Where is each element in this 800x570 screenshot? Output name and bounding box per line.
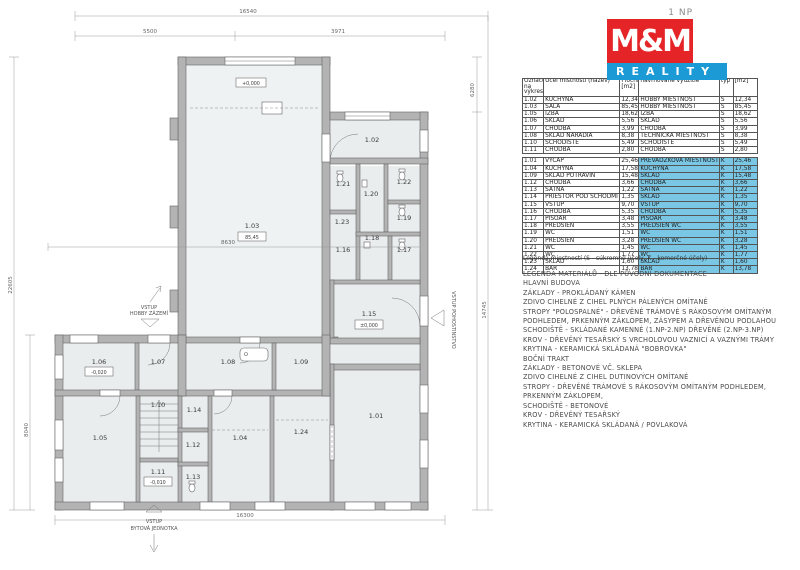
table-cell: HOBBY MIESTNOSŤ: [639, 96, 719, 103]
table-cell: 18,62: [733, 111, 757, 118]
legend-line: ZDIVO CIHELNÉ Z CIHEL PLNÝCH PÁLENÝCH OM…: [523, 298, 799, 307]
table-cell: PREDSIEŇ: [544, 237, 620, 244]
table-cell: S: [719, 132, 733, 139]
table-cell: 1.16: [523, 208, 544, 215]
table-cell: K: [719, 158, 733, 165]
table-cell: IZBA: [544, 111, 620, 118]
table-cell: 1,60: [733, 259, 757, 266]
legend-line: PRKENNÝM ZÁKLOPEM,: [523, 392, 799, 401]
col-header: typ: [719, 79, 733, 97]
entrance-pub-label: VSTUP POHOSTINSTVO: [450, 291, 456, 349]
table-cell: SKLAD: [639, 118, 719, 125]
table-cell: S: [719, 118, 733, 125]
room-label-1-04: 1.04: [233, 434, 247, 442]
room-label-1-01: 1.01: [369, 412, 383, 420]
table-cell: SCHODIŠTĚ: [639, 140, 719, 147]
materials-legend: LEGENDA MATERIÁLŮ - DLE PŮVODNÍ DOKUMENT…: [523, 270, 799, 430]
sink-icon: [362, 180, 367, 187]
table-cell: CHODBA: [639, 180, 719, 187]
table-cell: K: [719, 230, 733, 237]
room-label-1-11: 1.11: [151, 468, 165, 476]
table-cell: PREDSIEŇ: [544, 223, 620, 230]
table-row: 1.14PRIESTOR POD SCHODMI1,35SKLADK1,35: [523, 194, 758, 201]
col-header: Plocha [m2]: [620, 79, 639, 97]
brand-logo: 1 NP M&M REALITY: [607, 8, 727, 80]
screenshot-stage: 16540 5500 3971 6280 14745 22605 8040 1: [0, 0, 800, 570]
room-label-1-06: 1.06: [92, 358, 106, 366]
table-cell: 1.20: [523, 237, 544, 244]
table-cell: 1.15: [523, 201, 544, 208]
table-row: 1.09SKLAD POTRAVÍN15,48SKLADK15,48: [523, 172, 758, 179]
table-cell: 8,38: [733, 132, 757, 139]
logo-mm: M&M: [607, 19, 693, 63]
table-cell: 25,46: [620, 158, 639, 165]
dim-left-outer: 22605: [8, 276, 14, 294]
dim-right-lower: 14745: [482, 301, 488, 319]
table-cell: SKLAD: [639, 172, 719, 179]
floor-label: 1 NP: [607, 8, 693, 18]
table-cell: 1.21: [523, 244, 544, 251]
table-cell: 2,80: [620, 147, 639, 154]
table-row: 1.04KUCHYŇA17,58KUCHYŇAK17,58: [523, 165, 758, 172]
sidebar: 1 NP M&M REALITY Označení na výkresu Úče…: [520, 0, 800, 570]
room-label-1-09: 1.09: [294, 358, 308, 366]
table-cell: 1,77: [733, 252, 757, 259]
room-table-private: Označení na výkresu Účel místnosti (náze…: [522, 78, 758, 154]
dim-top-left: 5500: [143, 29, 157, 35]
logo-reality: REALITY: [607, 63, 727, 80]
legend-line: KRYTINA - KERAMICKÁ SKLÁDANÁ "BOBROVKA": [523, 345, 799, 354]
table-cell: 1.17: [523, 216, 544, 223]
table-cell: 18,62: [620, 111, 639, 118]
table-cell: ŠATŇA: [544, 187, 620, 194]
room-label-1-10: 1.10: [151, 401, 165, 409]
table-cell: KUCHYŇA: [544, 96, 620, 103]
entrance-flat-line1: VSTUP: [146, 519, 162, 525]
room-table: Označení na výkresu Účel místnosti (náze…: [522, 78, 760, 274]
table-cell: 5,56: [733, 118, 757, 125]
table-cell: 3,99: [733, 125, 757, 132]
entrance-hobby-line2: HOBBY ZÁZEMÍ: [130, 310, 169, 317]
room-label-1-05: 1.05: [93, 434, 107, 442]
table-cell: 5,56: [620, 118, 639, 125]
table-cell: CHODBA: [544, 147, 620, 154]
room-label-1-23: 1.23: [335, 218, 349, 226]
table-cell: VSTUP: [639, 201, 719, 208]
floor-plan-drawing: 16540 5500 3971 6280 14745 22605 8040 1: [0, 0, 520, 570]
table-cell: 12,34: [733, 96, 757, 103]
table-cell: 5,35: [733, 208, 757, 215]
table-cell: 1.02: [523, 96, 544, 103]
table-cell: IZBA: [639, 111, 719, 118]
table-cell: SKLAD: [639, 194, 719, 201]
room-label-1-18: 1.18: [365, 234, 379, 242]
table-header-row: Označení na výkresu Účel místnosti (náze…: [523, 79, 758, 97]
table-cell: K: [719, 252, 733, 259]
table-cell: 3,55: [733, 223, 757, 230]
table-cell: 1.07: [523, 125, 544, 132]
table-row: 1.13ŠATŇA1,22ŠATŇAK1,22: [523, 187, 758, 194]
table-cell: VSTUP: [544, 201, 620, 208]
table-cell: TECHNICKÁ MIESTNOSŤ: [639, 132, 719, 139]
table-cell: K: [719, 194, 733, 201]
table-cell: K: [719, 259, 733, 266]
table-cell: 1.12: [523, 180, 544, 187]
table-cell: 5,49: [733, 140, 757, 147]
table-cell: 1.19: [523, 230, 544, 237]
room-label-1-03: 1.03: [245, 222, 259, 230]
table-cell: 1.05: [523, 111, 544, 118]
table-row: 1.03SÁLA85,45HOBBY MIESTNOSŤS85,45: [523, 103, 758, 110]
table-cell: K: [719, 208, 733, 215]
table-row: 1.08SKLAD NÁRADIA8,38TECHNICKÁ MIESTNOSŤ…: [523, 132, 758, 139]
table-cell: 1,45: [733, 244, 757, 251]
table-cell: SKLAD: [544, 118, 620, 125]
table-cell: 3,99: [620, 125, 639, 132]
table-cell: CHODBA: [639, 208, 719, 215]
table-row: 1.21WC1,45WCK1,45: [523, 244, 758, 251]
table-row: 1.07CHODBA3,99CHODBAS3,99: [523, 125, 758, 132]
room-label-1-08: 1.08: [221, 358, 235, 366]
room-label-1-17: 1.17: [397, 246, 411, 254]
table-row: 1.19WC1,51WCK1,51: [523, 230, 758, 237]
entrance-flat-line2: BYTOVÁ JEDNOTKA: [130, 525, 178, 532]
table-cell: S: [719, 125, 733, 132]
table-cell: 3,48: [733, 216, 757, 223]
table-cell: KUCHYŇA: [544, 165, 620, 172]
table-row: 1.06SKLAD5,56SKLADS5,56: [523, 118, 758, 125]
table-cell: 85,45: [620, 103, 639, 110]
table-cell: CHODBA: [639, 147, 719, 154]
table-cell: S: [719, 111, 733, 118]
room-label-1-02: 1.02: [365, 136, 379, 144]
table-cell: PREDSIEŇ WC: [639, 223, 719, 230]
legend-line: LEGENDA MATERIÁLŮ - DLE PŮVODNÍ DOKUMENT…: [523, 270, 799, 279]
dim-bottom-total: 16300: [236, 513, 254, 519]
table-cell: 5,49: [620, 140, 639, 147]
table-cell: CHODBA: [544, 208, 620, 215]
table-cell: K: [719, 187, 733, 194]
room-label-1-19: 1.19: [397, 214, 411, 222]
table-cell: CHODBA: [639, 125, 719, 132]
table-cell: 1.08: [523, 132, 544, 139]
table-cell: 1,45: [620, 244, 639, 251]
table-cell: 1.13: [523, 187, 544, 194]
table-cell: 17,58: [733, 165, 757, 172]
table-cell: PISOÁR: [639, 216, 719, 223]
table-row: 1.20PREDSIEŇ3,28PREDSIEŇ WCK3,28: [523, 237, 758, 244]
legend-line: STROPY "POLOSPALNÉ" - DŘEVĚNÉ TRÁMOVÉ S …: [523, 308, 799, 317]
table-cell: S: [719, 103, 733, 110]
table-cell: 1,51: [733, 230, 757, 237]
table-cell: 1.11: [523, 147, 544, 154]
table-cell: 9,70: [733, 201, 757, 208]
table-cell: PREVÁDZKOVÁ MIESTNOSŤ: [639, 158, 719, 165]
table-cell: 5,35: [620, 208, 639, 215]
table-cell: 3,66: [733, 180, 757, 187]
table-cell: WC: [544, 230, 620, 237]
table-row: 1.02KUCHYŇA12,34HOBBY MIESTNOSŤS12,34: [523, 96, 758, 103]
table-row: 1.01VÝČAP25,46PREVÁDZKOVÁ MIESTNOSŤK25,4…: [523, 158, 758, 165]
table-cell: 8,38: [620, 132, 639, 139]
room-label-1-21: 1.21: [336, 180, 350, 188]
col-header: Účel místnosti (název): [544, 79, 620, 97]
table-cell: K: [719, 244, 733, 251]
table-cell: 3,48: [620, 216, 639, 223]
legend-line: SCHODIŠTĚ - BETONOVÉ: [523, 402, 799, 411]
legend-line: SCHODIŠTĚ - SKLÁDANÉ KAMENNÉ (1.NP-2.NP)…: [523, 326, 799, 335]
table-cell: 17,58: [620, 165, 639, 172]
table-cell: 25,46: [733, 158, 757, 165]
table-cell: SKLAD POTRAVÍN: [544, 172, 620, 179]
table-cell: K: [719, 201, 733, 208]
dim-top-right: 3971: [331, 29, 345, 35]
col-header: navrhované využitie: [639, 79, 719, 97]
room-label-1-16: 1.16: [336, 246, 350, 254]
table-cell: K: [719, 165, 733, 172]
legend-line: STROPY - DŘEVĚNÉ TRÁMOVÉ S RÁKOSOVÝM OMÍ…: [523, 383, 799, 392]
table-cell: PRIESTOR POD SCHODMI: [544, 194, 620, 201]
table-cell: 1.18: [523, 223, 544, 230]
table-cell: 3,55: [620, 223, 639, 230]
table-cell: 85,45: [733, 103, 757, 110]
dim-hall: 8630: [221, 240, 235, 246]
level-hall-top: +0,000: [242, 81, 260, 87]
dim-right-upper: 6280: [470, 83, 476, 97]
room-label-1-12: 1.12: [186, 441, 200, 449]
entrance-hobby: VSTUP HOBBY ZÁZEMÍ: [130, 286, 169, 327]
table-cell: 1,51: [620, 230, 639, 237]
room-label-1-13: 1.13: [186, 473, 200, 481]
table-cell: SÁLA: [544, 103, 620, 110]
table-cell: KUCHYŇA: [639, 165, 719, 172]
table-cell: 1,35: [733, 194, 757, 201]
room-label-1-20: 1.20: [364, 190, 378, 198]
table-cell: ŠATŇA: [639, 187, 719, 194]
table-cell: CHODBA: [544, 180, 620, 187]
table-cell: 1.04: [523, 165, 544, 172]
level-room-106: -0,020: [91, 370, 106, 376]
table-cell: 3,66: [620, 180, 639, 187]
table-cell: 1.10: [523, 140, 544, 147]
table-note: Legenda miestností (S - súkromné účely, …: [523, 255, 707, 262]
col-header: Označení na výkresu: [523, 79, 544, 97]
legend-line: KRYTINA - KERAMICKÁ SKLÁDANÁ / POVLAKOVÁ: [523, 421, 799, 430]
legend-line: ZÁKLADY - PROKLÁDANÝ KÁMEN: [523, 289, 799, 298]
table-row: 1.15VSTUP9,70VSTUPK9,70: [523, 201, 758, 208]
room-label-1-14: 1.14: [187, 406, 201, 414]
room-label-1-15: 1.15: [362, 310, 376, 318]
table-row: 1.10SCHODIŠTĚ5,49SCHODIŠTĚS5,49: [523, 140, 758, 147]
table-cell: 1.06: [523, 118, 544, 125]
table-cell: VÝČAP: [544, 158, 620, 165]
table-cell: S: [719, 147, 733, 154]
legend-line: HLAVNÍ BUDOVA: [523, 279, 799, 288]
area-hall: 85,45: [245, 235, 259, 241]
table-row: 1.18PREDSIEŇ3,55PREDSIEŇ WCK3,55: [523, 223, 758, 230]
table-cell: PISOÁR: [544, 216, 620, 223]
table-cell: 15,48: [620, 172, 639, 179]
table-cell: K: [719, 237, 733, 244]
table-cell: SCHODIŠTĚ: [544, 140, 620, 147]
legend-line: BOČNÍ TRAKT: [523, 355, 799, 364]
entrance-flat: VSTUP BYTOVÁ JEDNOTKA: [130, 505, 178, 552]
table-cell: 15,48: [733, 172, 757, 179]
table-cell: K: [719, 180, 733, 187]
table-cell: 1,22: [620, 187, 639, 194]
table-cell: CHODBA: [544, 125, 620, 132]
table-row: 1.12CHODBA3,66CHODBAK3,66: [523, 180, 758, 187]
table-cell: 1.01: [523, 158, 544, 165]
legend-line: ZDIVO CIHELNÉ Z CIHEL DUTINOVÝCH OMÍTANÉ: [523, 373, 799, 382]
legend-line: KROV - DŘEVĚNÝ TESAŘSKÝ S VRCHOLOVOU VAZ…: [523, 336, 799, 345]
table-row: 1.17PISOÁR3,48PISOÁRK3,48: [523, 216, 758, 223]
table-cell: S: [719, 140, 733, 147]
table-cell: WC: [544, 244, 620, 251]
room-label-1-22: 1.22: [397, 178, 411, 186]
table-cell: HOBBY MIESTNOSŤ: [639, 103, 719, 110]
table-cell: K: [719, 216, 733, 223]
table-cell: 1,22: [733, 187, 757, 194]
table-cell: 1.03: [523, 103, 544, 110]
table-cell: SKLAD NÁRADIA: [544, 132, 620, 139]
table-cell: PREDSIEŇ WC: [639, 237, 719, 244]
col-header: [m2]: [733, 79, 757, 97]
entrance-pub: VSTUP POHOSTINSTVO: [431, 291, 456, 349]
table-cell: 3,28: [733, 237, 757, 244]
table-row: 1.16CHODBA5,35CHODBAK5,35: [523, 208, 758, 215]
dim-left-inner: 8040: [24, 423, 30, 437]
table-cell: 3,28: [620, 237, 639, 244]
table-cell: 9,70: [620, 201, 639, 208]
toilet-icon: [189, 481, 195, 492]
table-cell: 2,80: [733, 147, 757, 154]
table-cell: 1,35: [620, 194, 639, 201]
legend-line: KROV - DŘEVĚNÝ TESAŘSKÝ: [523, 411, 799, 420]
table-cell: S: [719, 96, 733, 103]
room-label-1-07: 1.07: [151, 358, 165, 366]
room-label-1-24: 1.24: [294, 428, 308, 436]
level-room-115: ±0,000: [360, 323, 378, 329]
table-cell: K: [719, 223, 733, 230]
table-cell: K: [719, 172, 733, 179]
level-room-111: -0,010: [150, 480, 165, 486]
dim-top-total: 16540: [239, 9, 257, 15]
table-cell: 12,34: [620, 96, 639, 103]
table-cell: WC: [639, 244, 719, 251]
table-row: 1.05IZBA18,62IZBAS18,62: [523, 111, 758, 118]
table-cell: WC: [639, 230, 719, 237]
table-cell: 1.14: [523, 194, 544, 201]
table-cell: 1.09: [523, 172, 544, 179]
bathtub-icon: [240, 348, 268, 361]
table-row: 1.11CHODBA2,80CHODBAS2,80: [523, 147, 758, 154]
